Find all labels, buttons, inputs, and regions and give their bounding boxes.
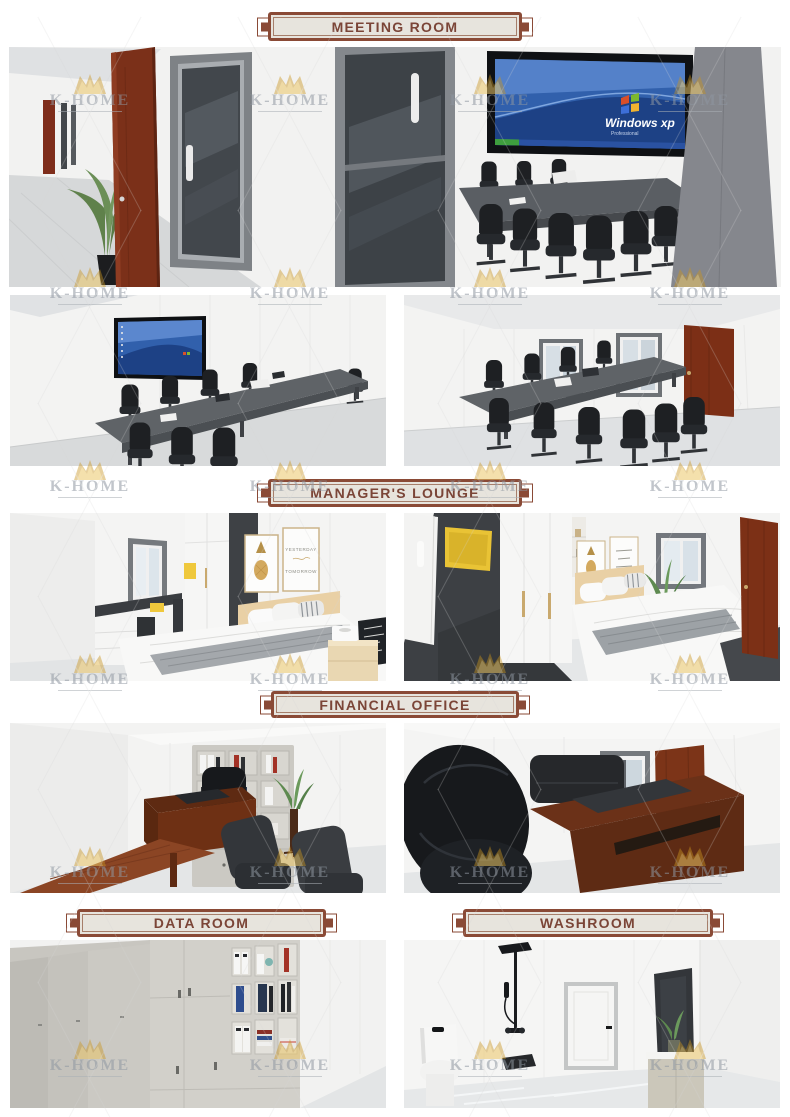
window — [128, 538, 167, 605]
render-meeting-room-windows — [404, 295, 780, 466]
banner-label: MANAGER'S LOUNGE — [310, 485, 480, 501]
wall-art-text: YESTERDAY TOMORROW — [283, 528, 319, 591]
banner-end-ornament — [261, 489, 270, 498]
glass-door — [335, 47, 455, 287]
banner-end-ornament — [456, 919, 465, 928]
page: Windows xp Professional — [0, 0, 790, 1117]
render-meeting-room-tv — [10, 295, 386, 466]
open-door — [111, 47, 160, 287]
tv-screen: Windows xp Professional — [487, 51, 693, 157]
tv-os-sublabel: Professional — [611, 131, 639, 137]
banner-end-ornament — [70, 919, 79, 928]
banner-end-ornament — [261, 22, 270, 31]
render-washroom — [404, 940, 780, 1108]
wall-art-pineapple — [245, 535, 278, 592]
banner-label: DATA ROOM — [154, 915, 249, 931]
render-bedroom-entry — [404, 513, 780, 681]
filing-cabinets — [10, 940, 150, 1108]
render-data-room — [10, 940, 386, 1108]
banner-label: WASHROOM — [540, 915, 636, 931]
door — [740, 517, 778, 659]
section-banner-financial-office: FINANCIAL OFFICE — [271, 691, 519, 718]
watermark-text: K-HOME — [35, 479, 145, 495]
watermark-underline — [658, 690, 722, 691]
banner-label: FINANCIAL OFFICE — [319, 697, 470, 713]
watermark-underline — [58, 497, 122, 498]
banner-end-ornament — [264, 700, 273, 709]
banner-end-ornament — [324, 919, 333, 928]
shelf-unit — [150, 940, 300, 1108]
window — [170, 52, 252, 271]
section-banner-meeting-room: MEETING ROOM — [268, 12, 522, 41]
render-financial-office-desk — [404, 723, 780, 893]
door — [564, 982, 618, 1070]
render-meeting-room-main: Windows xp Professional — [9, 47, 781, 287]
watermark-underline — [658, 497, 722, 498]
banner-end-ornament — [520, 489, 529, 498]
banner-end-ornament — [711, 919, 720, 928]
watermark-text: K-HOME — [635, 479, 745, 495]
section-banner-managers-lounge: MANAGER'S LOUNGE — [268, 479, 522, 507]
toilet — [420, 1024, 460, 1106]
render-bedroom-desk: YESTERDAY TOMORROW — [10, 513, 386, 681]
yellow-drawer — [150, 603, 164, 612]
render-financial-office-bookshelf — [10, 723, 386, 893]
banner-end-ornament — [517, 700, 526, 709]
banner-end-ornament — [520, 22, 529, 31]
section-banner-data-room: DATA ROOM — [77, 909, 326, 937]
section-banner-washroom: WASHROOM — [463, 909, 713, 937]
banner-label: MEETING ROOM — [332, 19, 459, 35]
tv-os-label: Windows xp — [605, 116, 675, 130]
tv-screen — [114, 316, 206, 380]
far-door — [43, 100, 55, 174]
open-door — [404, 513, 438, 645]
watermark-underline — [58, 690, 122, 691]
wall-art-line2: TOMORROW — [285, 569, 317, 574]
wall-art-line1: YESTERDAY — [285, 547, 316, 552]
